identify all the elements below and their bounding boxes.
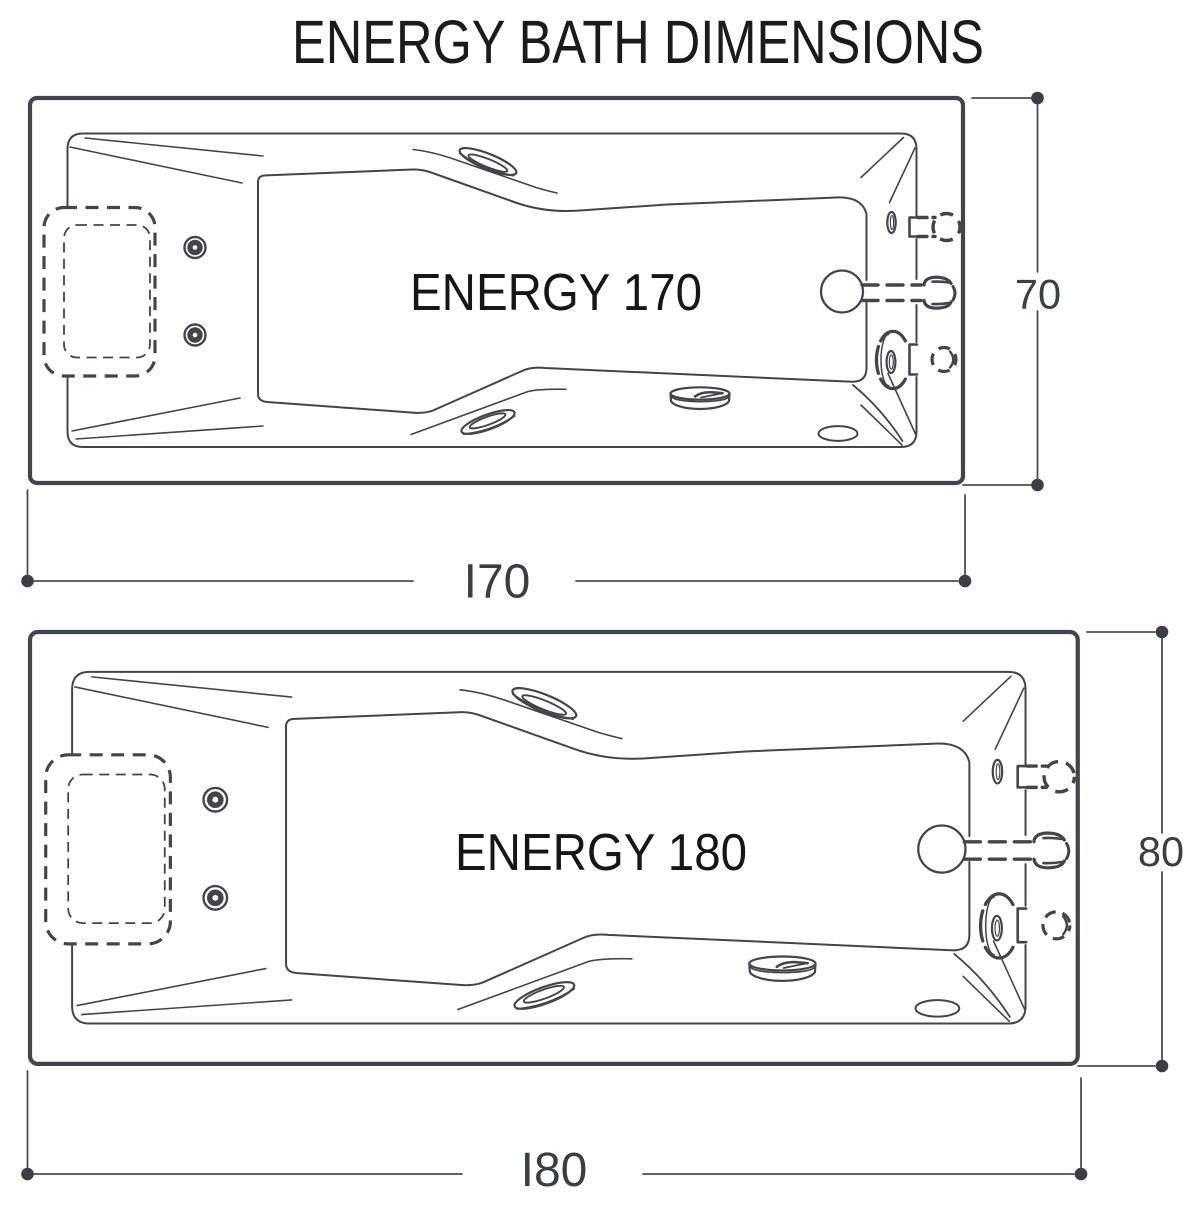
svg-text:ENERGY BATH DIMENSIONS: ENERGY BATH DIMENSIONS (292, 8, 984, 76)
svg-text:70: 70 (1015, 271, 1061, 318)
svg-text:ENERGY 170: ENERGY 170 (410, 264, 702, 322)
svg-text:I70: I70 (464, 556, 531, 609)
svg-text:I80: I80 (521, 1144, 588, 1197)
svg-text:ENERGY 180: ENERGY 180 (455, 824, 747, 882)
svg-text:80: 80 (1138, 828, 1184, 875)
